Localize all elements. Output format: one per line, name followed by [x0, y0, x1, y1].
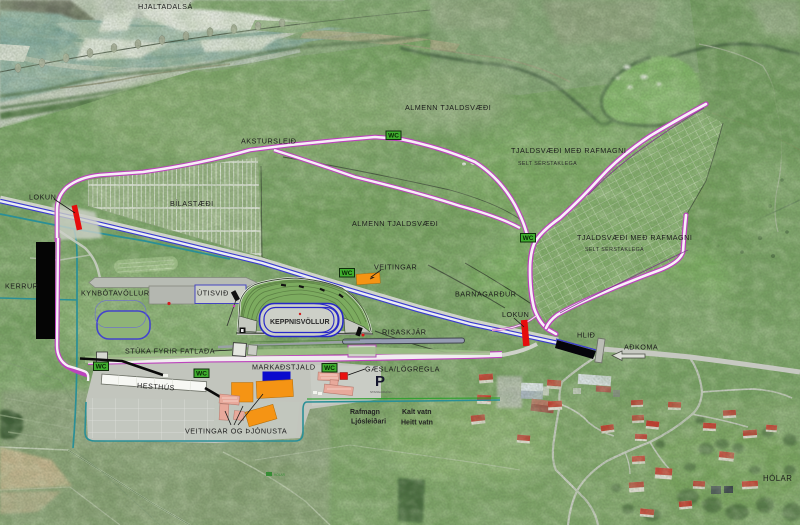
svg-text:BARNAGARÐUR: BARNAGARÐUR [455, 290, 516, 299]
svg-text:RISASKJÁR: RISASKJÁR [382, 328, 426, 337]
svg-text:ALMENN TJALDSVÆÐI: ALMENN TJALDSVÆÐI [405, 103, 491, 112]
svg-text:Heitt vatn: Heitt vatn [401, 420, 433, 427]
svg-text:LOKUN: LOKUN [29, 193, 56, 202]
svg-text:VEITINGAR: VEITINGAR [374, 263, 417, 272]
svg-text:Ljósleiðari: Ljósleiðari [351, 418, 386, 426]
svg-text:KEPPNISVÖLLUR: KEPPNISVÖLLUR [270, 317, 330, 326]
svg-text:WC: WC [342, 270, 353, 277]
svg-text:BÍLASTÆÐI: BÍLASTÆÐI [170, 199, 214, 208]
svg-text:Rafmagn: Rafmagn [350, 409, 380, 416]
svg-text:HÓLAR: HÓLAR [763, 474, 792, 483]
svg-text:WC: WC [388, 133, 399, 140]
svg-text:HLIÐ: HLIÐ [577, 331, 595, 340]
svg-text:HJALTADALSÁ: HJALTADALSÁ [138, 2, 193, 11]
svg-text:SELT SÉRSTAKLEGA: SELT SÉRSTAKLEGA [585, 246, 644, 253]
svg-text:WC: WC [96, 364, 107, 371]
svg-text:MARKAÐSTJALD: MARKAÐSTJALD [252, 363, 316, 372]
svg-text:VEITINGAR OG ÞJÓNUSTA: VEITINGAR OG ÞJÓNUSTA [185, 427, 287, 436]
svg-text:TJALDSVÆÐI MEÐ RAFMAGNI: TJALDSVÆÐI MEÐ RAFMAGNI [577, 233, 692, 242]
svg-text:LOKUN: LOKUN [502, 310, 529, 319]
svg-text:STÚKA FYRIR FATLAÐA: STÚKA FYRIR FATLAÐA [125, 347, 215, 356]
svg-text:Kalt vatn: Kalt vatn [402, 409, 432, 416]
svg-text:TJALDSVÆÐI MEÐ RAFMAGNI: TJALDSVÆÐI MEÐ RAFMAGNI [511, 146, 626, 155]
svg-text:WC: WC [196, 371, 207, 378]
svg-text:KYNBÓTAVÖLLUR: KYNBÓTAVÖLLUR [81, 289, 150, 298]
svg-text:ALMENN TJALDSVÆÐI: ALMENN TJALDSVÆÐI [352, 219, 438, 228]
svg-text:ÚTISVIÐ: ÚTISVIÐ [197, 289, 229, 298]
svg-text:AÐKOMA: AÐKOMA [624, 343, 658, 352]
svg-text:SELT SÉRSTAKLEGA: SELT SÉRSTAKLEGA [518, 160, 577, 167]
svg-text:KERRUR: KERRUR [5, 282, 38, 291]
svg-text:WC: WC [324, 365, 335, 372]
svg-text:AKSTURSLEIÐ: AKSTURSLEIÐ [241, 137, 296, 146]
svg-text:P: P [375, 373, 385, 390]
svg-text:WC: WC [523, 235, 534, 242]
svg-text:STANGARHÓLL: STANGARHÓLL [370, 389, 392, 394]
svg-text:HOLAR: HOLAR [274, 473, 286, 477]
